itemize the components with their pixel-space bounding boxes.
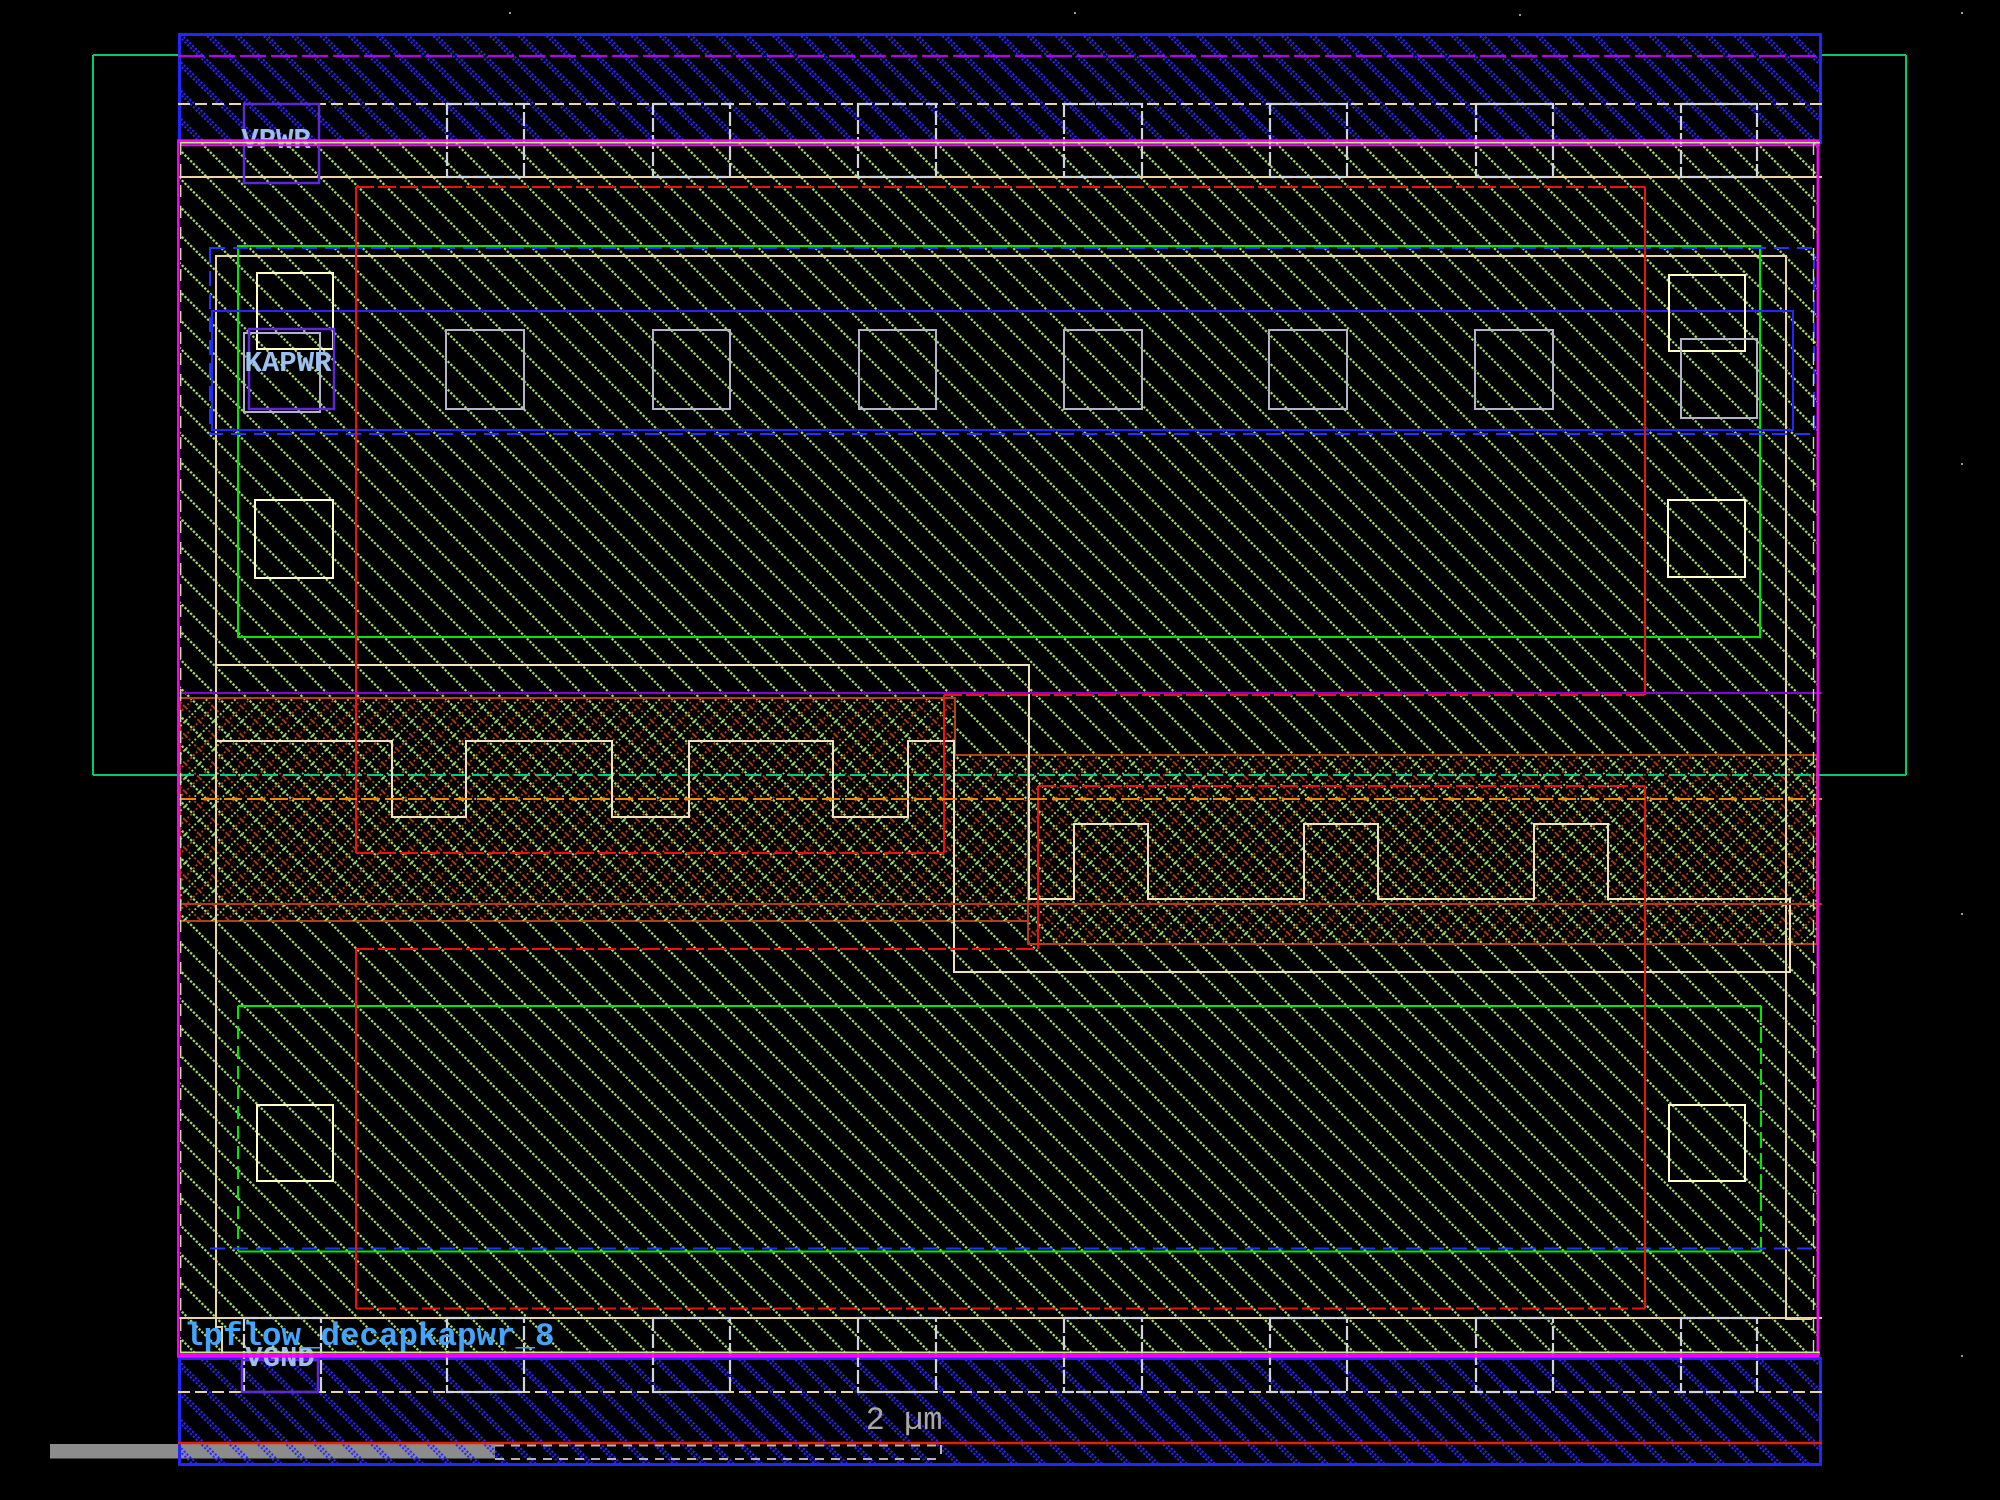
svg-text:KAPWR: KAPWR bbox=[244, 347, 332, 380]
svg-text:2 µm: 2 µm bbox=[866, 1402, 943, 1439]
svg-text:lpflow_decapkapwr_8: lpflow_decapkapwr_8 bbox=[184, 1318, 555, 1355]
